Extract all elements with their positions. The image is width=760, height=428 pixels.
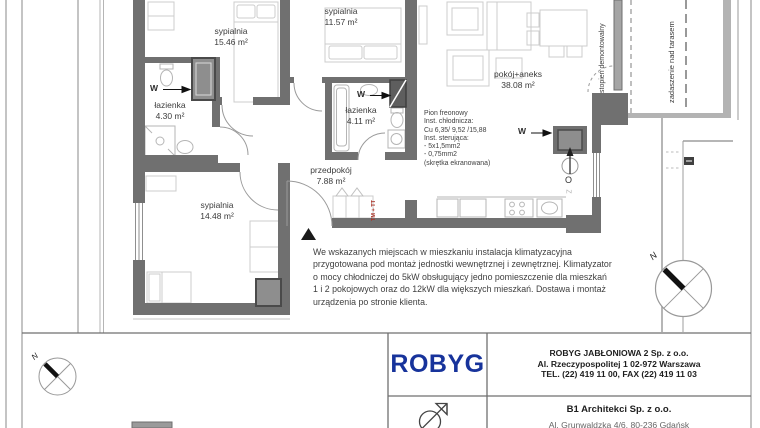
cut-off-plan-fragment	[132, 422, 172, 428]
north-arrow-large	[656, 261, 712, 317]
architect-address: Al. Grunwaldzka 4/6, 80-236 Gdańsk	[487, 420, 751, 428]
developer-phone: TEL. (22) 419 11 00, FAX (22) 419 11 03	[487, 369, 751, 380]
vent-o-label: O	[565, 175, 572, 185]
section-marker-triangle	[301, 228, 316, 240]
freon-note-line: Cu 6,35/ 9,52 /15,88	[424, 127, 490, 135]
room-name: przedpokój	[310, 165, 352, 176]
developer-address: Al. Rzeczypospolitej 1 02-972 Warszawa	[487, 359, 751, 370]
freon-note: Pion freonowy Inst. chłodnicza: Cu 6,35/…	[424, 110, 490, 168]
room-area: 11.57 m²	[324, 17, 357, 28]
room-area: 4.11 m²	[345, 116, 376, 127]
room-label-lazienka-2: łazienka 4.11 m²	[345, 105, 376, 126]
sink-z-label: Z	[565, 189, 572, 193]
room-area: 15.46 m²	[214, 37, 248, 48]
room-label-pokoj-aneks: pokój+aneks 38.08 m²	[494, 69, 542, 90]
room-name: pokój+aneks	[494, 69, 542, 80]
freon-note-line: Inst. chłodnicza:	[424, 118, 490, 126]
removable-step-label: stopień demontowalny	[599, 23, 606, 93]
floor-plan-sheet: sypialnia 15.46 m² sypialnia 11.57 m² ła…	[0, 0, 760, 428]
hvac-note-line: urządzenia po stronie klienta.	[313, 296, 612, 308]
room-label-sypialnia-2: sypialnia 11.57 m²	[324, 6, 357, 27]
freon-note-line: - 0,75mm2	[424, 151, 490, 159]
hvac-note-line: o mocy chłodniczej do 5kW obsługujący je…	[313, 271, 612, 283]
room-name: sypialnia	[324, 6, 357, 17]
developer-info: ROBYG JABŁONIOWA 2 Sp. z o.o. Al. Rzeczy…	[487, 348, 751, 380]
room-name: łazienka	[154, 100, 185, 111]
robyg-logo: ROBYG	[388, 333, 487, 396]
room-label-przedpokoj: przedpokój 7.88 m²	[310, 165, 352, 186]
hvac-note-line: przygotowana pod montaż jednostki wewnęt…	[313, 258, 612, 270]
room-label-sypialnia-3: sypialnia 14.48 m²	[200, 200, 234, 221]
balcony-door-leaf	[614, 0, 622, 90]
hvac-note-line: We wskazanych miejscach w mieszkaniu ins…	[313, 246, 612, 258]
room-name: sypialnia	[214, 26, 248, 37]
freon-note-line: - 5x1,5mm2	[424, 143, 490, 151]
hvac-note-line: 1 i 2 pokojowych oraz do 12kW dla większ…	[313, 283, 612, 295]
room-label-lazienka-1: łazienka 4.30 m²	[154, 100, 185, 121]
b1-architekci-logo	[419, 404, 447, 428]
developer-name: ROBYG JABŁONIOWA 2 Sp. z o.o.	[487, 348, 751, 359]
north-arrow-small	[39, 358, 76, 395]
riser-label-tm-tt: TM + TT	[371, 200, 377, 221]
shaft-label-w3: W	[518, 126, 526, 136]
freon-note-line: Pion freonowy	[424, 110, 490, 118]
hvac-note: We wskazanych miejscach w mieszkaniu ins…	[313, 246, 612, 308]
room-area: 14.48 m²	[200, 211, 234, 222]
freon-note-line: (skrętka ekranowana)	[424, 160, 490, 168]
room-area: 38.08 m²	[494, 80, 542, 91]
room-name: łazienka	[345, 105, 376, 116]
room-area: 7.88 m²	[310, 176, 352, 187]
freon-note-line: Inst. sterująca:	[424, 135, 490, 143]
terrace-roof-label: zadaszenie nad tarasem	[667, 21, 676, 103]
architect-name: B1 Architekci Sp. z o.o.	[487, 404, 751, 415]
shaft-label-w1: W	[150, 83, 158, 93]
room-area: 4.30 m²	[154, 111, 185, 122]
room-name: sypialnia	[200, 200, 234, 211]
room-label-sypialnia-1: sypialnia 15.46 m²	[214, 26, 248, 47]
shaft-label-w2: W	[357, 89, 365, 99]
